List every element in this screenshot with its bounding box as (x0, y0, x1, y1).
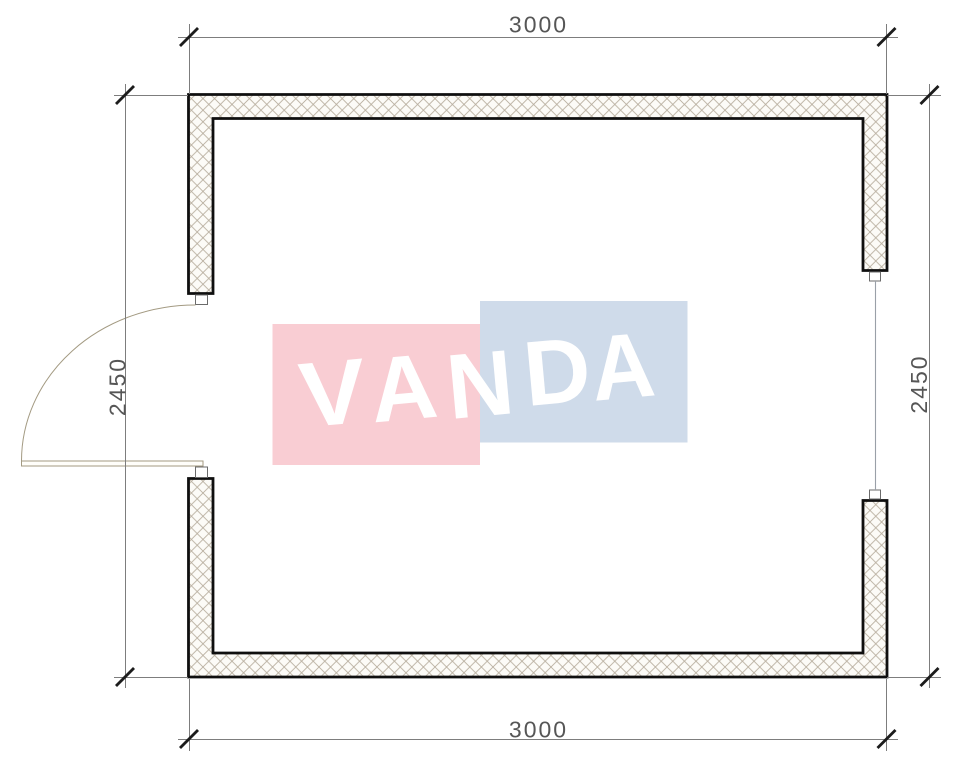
svg-text:3000: 3000 (509, 717, 568, 743)
svg-text:A: A (366, 335, 441, 443)
svg-text:2450: 2450 (105, 357, 131, 416)
svg-text:3000: 3000 (509, 12, 568, 38)
svg-text:N: N (442, 331, 517, 439)
svg-text:V: V (295, 339, 370, 447)
svg-text:A: A (587, 313, 659, 421)
svg-text:D: D (519, 318, 594, 426)
svg-text:2450: 2450 (906, 354, 932, 413)
